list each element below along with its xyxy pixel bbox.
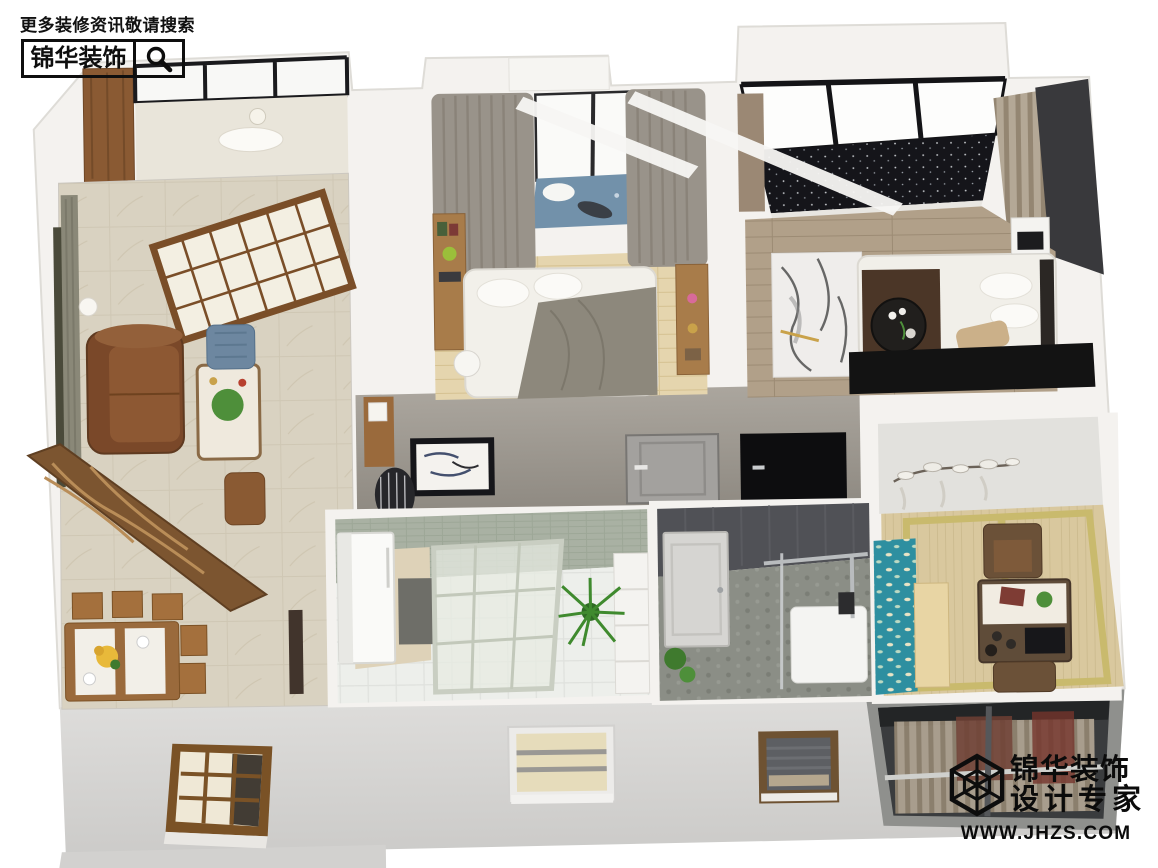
facade-window-blinds: [758, 730, 839, 803]
threshold: [288, 610, 303, 694]
facade-window-lit: [508, 726, 615, 804]
watermark-search-logo: 锦华装饰: [21, 39, 185, 78]
living-dining-room: [24, 173, 358, 710]
floorplan-render-page: 更多装修资讯敬请搜索 锦华装饰 锦华装饰 设计专家 WWW.JHZS.COM: [0, 0, 1158, 868]
brand-name: 锦华装饰: [1010, 755, 1146, 785]
watermark-tagline: 更多装修资讯敬请搜索: [20, 11, 195, 36]
sliding-glass-partition: [434, 541, 564, 692]
roof-block: [509, 57, 609, 91]
door-handle: [634, 465, 647, 470]
bathroom: [649, 498, 884, 705]
dark-doorway: [740, 432, 847, 501]
white-shelf-unit: [614, 553, 650, 693]
kitchen: [325, 505, 660, 708]
shower-tray: [790, 606, 867, 683]
dining-chair: [152, 594, 182, 620]
kitchen-counter: [398, 578, 433, 644]
dining-chair: [112, 591, 142, 617]
round-black-table: [871, 298, 926, 353]
tea-chair-bottom: [993, 661, 1055, 692]
glass-screen: [780, 553, 784, 689]
interior-door: [626, 434, 719, 503]
wood-bench: [914, 583, 949, 687]
website-url: WWW.JHZS.COM: [946, 823, 1146, 845]
facade-window-wood-grid: [162, 742, 273, 850]
lattice-cube-logo-icon: [948, 753, 1006, 817]
headboard: [1040, 259, 1055, 353]
brand-name: 锦华装饰: [24, 47, 133, 71]
dining-chair: [179, 663, 205, 693]
master-bedroom: [737, 75, 1105, 398]
magnifier-icon: [136, 44, 182, 74]
wood-armchair: [225, 472, 266, 525]
tea-book: [999, 587, 1025, 607]
tea-room: [868, 412, 1124, 703]
round-floor-lamp: [454, 350, 480, 376]
watermark-bottom-right: 锦华装饰 设计专家: [948, 753, 1146, 817]
scene-root: [22, 21, 1127, 868]
bed-center: [464, 267, 658, 400]
framed-artwork: [410, 437, 495, 496]
refrigerator: [337, 533, 395, 664]
blue-accent-chair: [207, 325, 256, 370]
apartment-3d-render: [0, 0, 1158, 868]
dining-chair: [181, 625, 207, 655]
balcony-table: [219, 127, 283, 152]
floor-lamp: [79, 298, 97, 316]
chandelier: [249, 108, 265, 124]
leather-sofa: [86, 324, 184, 454]
brand-subtitle: 设计专家: [1010, 785, 1146, 815]
teal-fish-rug: [874, 538, 918, 695]
tea-chair-top: [983, 524, 1042, 579]
tea-stove: [1025, 627, 1065, 654]
right-shelf: [676, 264, 710, 374]
dining-chair: [72, 593, 102, 619]
wall-shelf-desk: [433, 214, 467, 350]
tea-table: [978, 579, 1071, 662]
bathroom-door: [663, 532, 729, 647]
coffee-table: [197, 364, 260, 459]
